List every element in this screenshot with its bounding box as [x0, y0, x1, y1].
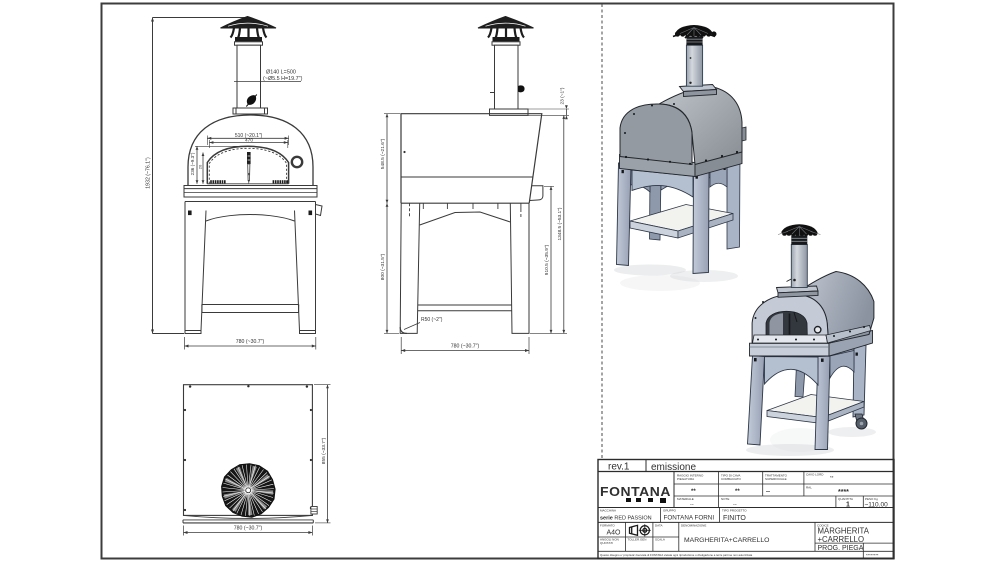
svg-text:emissione: emissione [651, 462, 696, 473]
svg-text:TIPO PROGETTO: TIPO PROGETTO [722, 509, 747, 513]
svg-text:FONTANA FORNI: FONTANA FORNI [664, 515, 715, 522]
svg-text:**: ** [691, 489, 696, 495]
svg-text:Ø140 L=500: Ø140 L=500 [266, 70, 296, 76]
svg-text:855 (~33.7"): 855 (~33.7") [321, 437, 327, 464]
svg-text:FORMATO: FORMATO [600, 524, 615, 528]
svg-text:780 (~30.7"): 780 (~30.7") [236, 339, 265, 345]
svg-text:GRUPPO: GRUPPO [663, 509, 677, 513]
svg-text:COMBACIATO: COMBACIATO [721, 477, 742, 481]
svg-text:23 (~1"): 23 (~1") [560, 87, 566, 104]
svg-text:FONTANA: FONTANA [600, 485, 671, 499]
svg-text:800 (~31.5"): 800 (~31.5") [380, 253, 386, 280]
svg-text:QUOTATI: QUOTATI [600, 541, 613, 545]
svg-text:DENOMINAZIONE: DENOMINAZIONE [681, 524, 706, 528]
svg-text:**: ** [830, 475, 834, 480]
svg-text:A4O: A4O [607, 530, 622, 537]
svg-text:780 (~30.7"): 780 (~30.7") [451, 344, 480, 350]
svg-text:1348.5 (~53.1"): 1348.5 (~53.1") [557, 207, 563, 240]
svg-text:MACCHINA: MACCHINA [600, 509, 616, 513]
svg-text:QUANTITA: QUANTITA [838, 497, 853, 501]
svg-text:1932 (~76.1"): 1932 (~76.1") [146, 157, 152, 189]
svg-text:PIEGATURA: PIEGATURA [677, 477, 694, 481]
svg-text:RAL: RAL [806, 486, 812, 490]
svg-text:(~Ø5.5 H=19.7"): (~Ø5.5 H=19.7") [263, 76, 303, 82]
svg-text:CAVO LORD: CAVO LORD [806, 473, 824, 477]
svg-text:serie RED PASSION: serie RED PASSION [600, 516, 652, 522]
svg-text:rev.1: rev.1 [608, 462, 630, 473]
svg-text:********: ******** [866, 553, 879, 558]
svg-text:****: **** [838, 489, 849, 496]
svg-text:MARGHERITA+CARRELLO: MARGHERITA+CARRELLO [684, 537, 769, 544]
svg-text:--: -- [766, 490, 770, 496]
svg-text:NOTE: NOTE [721, 497, 729, 501]
svg-text:MATERIALE: MATERIALE [677, 497, 694, 501]
svg-text:910.5 (~35.9"): 910.5 (~35.9") [544, 244, 550, 275]
svg-text:PESO Kg: PESO Kg [865, 497, 878, 501]
svg-text:DATA: DATA [655, 524, 663, 528]
svg-text:+CARRELLO: +CARRELLO [818, 535, 865, 544]
svg-text:TOLLER.GEN: TOLLER.GEN [628, 538, 647, 542]
svg-text:R50 (~2"): R50 (~2") [421, 317, 443, 323]
svg-text:FINITO: FINITO [723, 515, 746, 522]
svg-text:236 (~9.3"): 236 (~9.3") [190, 152, 195, 175]
svg-text:**: ** [735, 489, 740, 495]
svg-text:780 (~30.7"): 780 (~30.7") [234, 526, 263, 532]
svg-text:SUPERFICIALE: SUPERFICIALE [765, 477, 787, 481]
svg-text:Questo disegno e' proprieta' r: Questo disegno e' proprieta' riservata d… [600, 553, 753, 557]
svg-text:20: 20 [198, 164, 203, 169]
svg-text:SCALA: SCALA [655, 538, 665, 542]
svg-text:548.5 (~21.6"): 548.5 (~21.6") [380, 138, 386, 169]
